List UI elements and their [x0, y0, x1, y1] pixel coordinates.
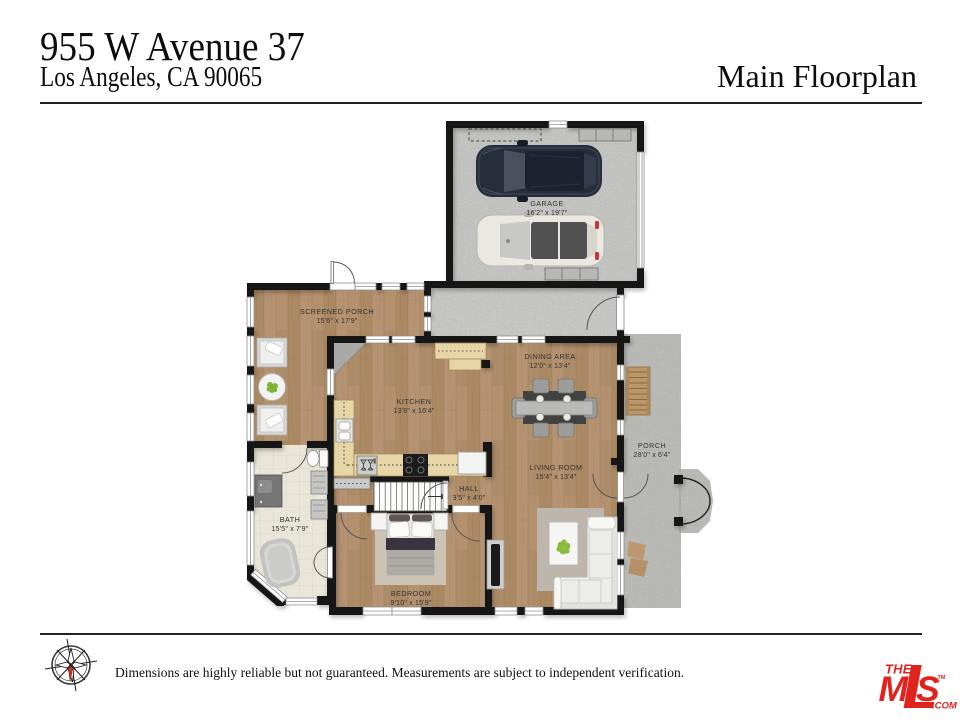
svg-text:.COM: .COM — [932, 701, 958, 712]
svg-text:28'0" x 6'4": 28'0" x 6'4" — [634, 452, 671, 459]
svg-text:16'2" x 19'7": 16'2" x 19'7" — [527, 210, 568, 217]
svg-text:3'5" x 4'0": 3'5" x 4'0" — [453, 495, 486, 502]
svg-text:13'8" x 16'4": 13'8" x 16'4" — [394, 408, 435, 415]
svg-text:SCREENED PORCH: SCREENED PORCH — [300, 307, 374, 316]
svg-text:12'0" x 13'4": 12'0" x 13'4" — [530, 363, 571, 370]
svg-text:9'10" x 15'9": 9'10" x 15'9" — [391, 600, 432, 607]
svg-text:HALL: HALL — [459, 484, 479, 493]
svg-text:BEDROOM: BEDROOM — [391, 589, 431, 598]
svg-text:KITCHEN: KITCHEN — [397, 397, 432, 406]
svg-text:BATH: BATH — [280, 515, 300, 524]
svg-text:GARAGE: GARAGE — [530, 199, 563, 208]
svg-text:15'4" x 13'4": 15'4" x 13'4" — [536, 474, 577, 481]
svg-text:15'5" x 7'9": 15'5" x 7'9" — [272, 526, 309, 533]
svg-text:DINING AREA: DINING AREA — [524, 352, 575, 361]
svg-text:LIVING ROOM: LIVING ROOM — [530, 463, 583, 472]
svg-text:15'6" x 17'9": 15'6" x 17'9" — [317, 318, 358, 325]
svg-text:TM: TM — [938, 675, 946, 681]
svg-text:PORCH: PORCH — [638, 441, 666, 450]
